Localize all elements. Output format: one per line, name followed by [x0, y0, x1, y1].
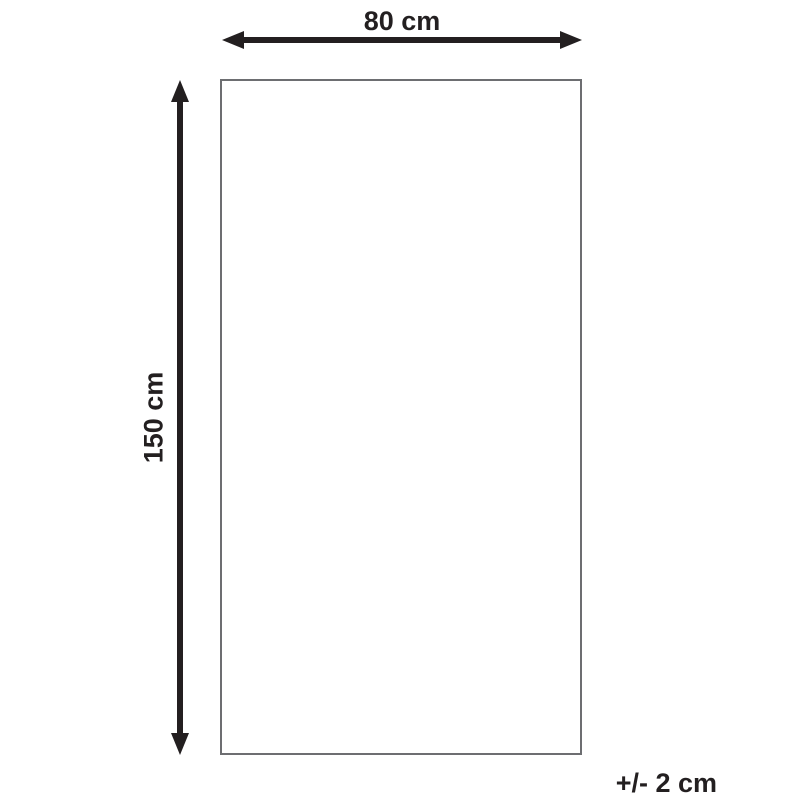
width-dimension-label-wrap: 80 cm [222, 8, 582, 35]
height-dimension-label: 150 cm [141, 372, 168, 464]
product-outline-rectangle [220, 79, 582, 755]
dimension-diagram: 80 cm 150 cm +/- 2 cm [0, 0, 800, 800]
arrow-up-icon [171, 80, 189, 102]
width-dimension-label: 80 cm [364, 6, 441, 36]
vertical-dimension-arrow-line [177, 98, 183, 737]
arrow-right-icon [560, 31, 582, 49]
arrow-left-icon [222, 31, 244, 49]
tolerance-label: +/- 2 cm [616, 770, 717, 797]
arrow-down-icon [171, 733, 189, 755]
height-dimension-label-wrap: 150 cm [126, 80, 182, 755]
horizontal-dimension-arrow-line [240, 37, 564, 43]
